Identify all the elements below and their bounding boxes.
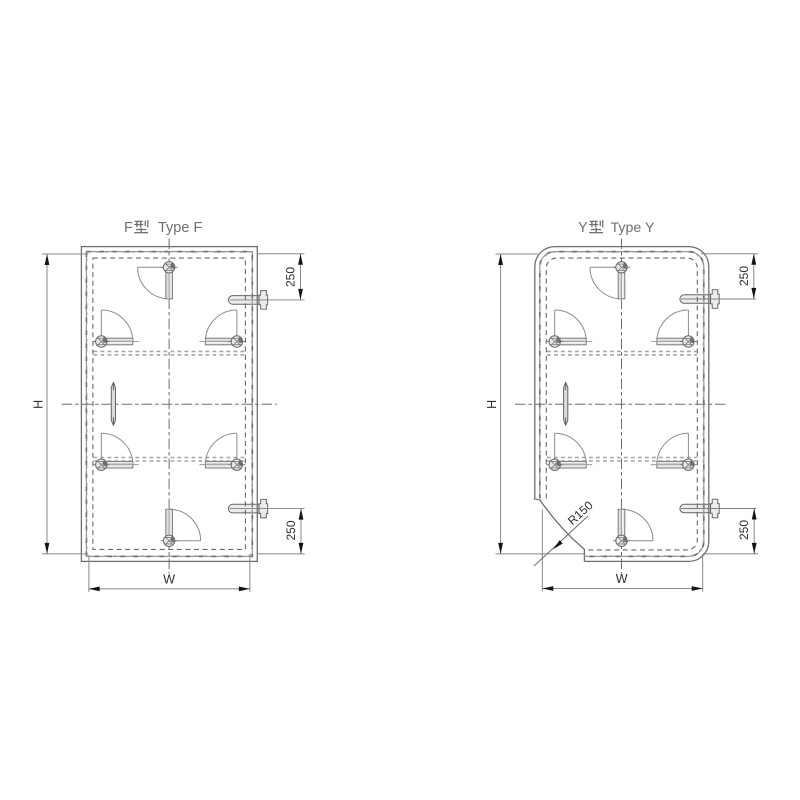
svg-text:W: W (163, 573, 175, 587)
svg-text:Type Y: Type Y (611, 220, 655, 236)
svg-text:F: F (124, 220, 133, 236)
svg-text:W: W (616, 572, 628, 586)
svg-text:250: 250 (284, 520, 298, 540)
svg-text:250: 250 (283, 267, 297, 287)
svg-text:Type F: Type F (158, 220, 202, 236)
svg-text:H: H (485, 400, 499, 409)
svg-text:H: H (31, 400, 45, 409)
svg-text:250: 250 (737, 520, 751, 540)
svg-text:250: 250 (737, 266, 751, 286)
svg-text:Y: Y (578, 220, 588, 236)
